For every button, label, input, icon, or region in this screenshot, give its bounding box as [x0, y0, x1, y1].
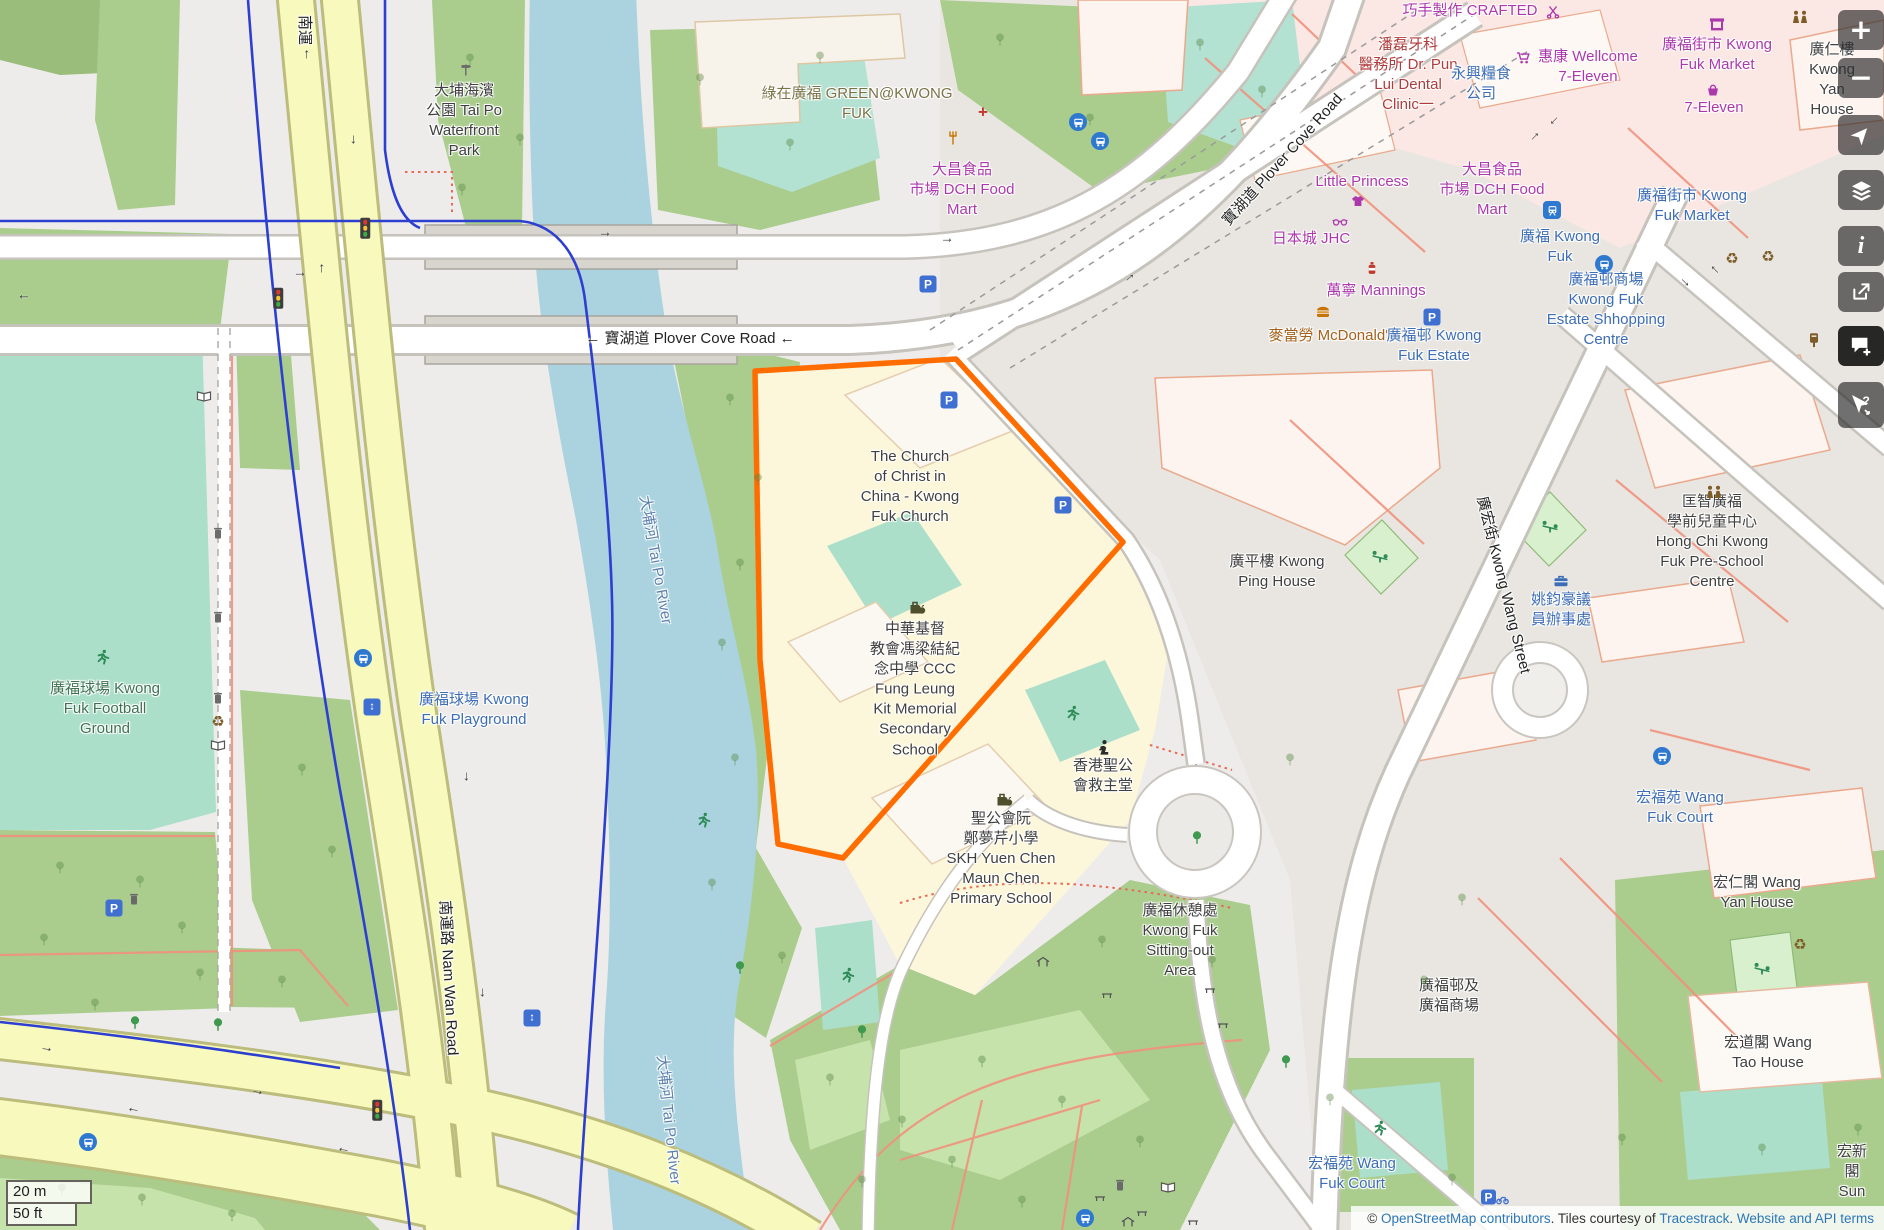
scale-imperial: 50 ft [6, 1202, 77, 1226]
football-ground-area [0, 330, 216, 830]
promenade [218, 328, 230, 1012]
attribution-link[interactable]: Tracestrack [1659, 1211, 1729, 1226]
map-canvas [0, 0, 1884, 1230]
map-viewport[interactable]: 南運大埔海濱 公園 Tai Po Waterfront Park綠在廣福 GRE… [0, 0, 1884, 1230]
attribution-link[interactable]: OpenStreetMap contributors [1381, 1211, 1551, 1226]
attribution-text: . Tiles courtesy of [1551, 1211, 1660, 1226]
attribution-text: . [1729, 1211, 1737, 1226]
attribution-bar: © OpenStreetMap contributors. Tiles cour… [1351, 1206, 1884, 1230]
attribution-link[interactable]: Website and API terms [1737, 1211, 1874, 1226]
scale-metric: 20 m [6, 1180, 92, 1204]
scale-bar: 20 m 50 ft [6, 1180, 92, 1226]
attribution-text: © [1367, 1211, 1381, 1226]
